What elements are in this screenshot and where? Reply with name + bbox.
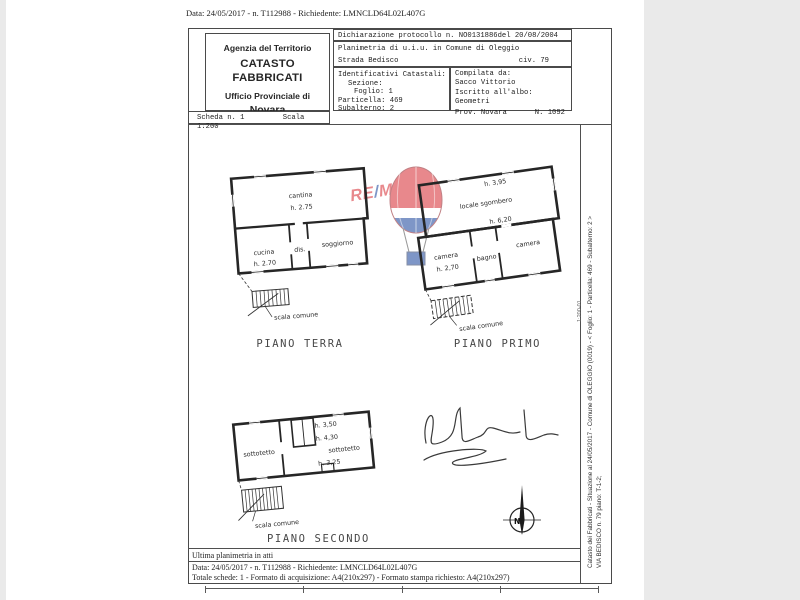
primo-title: PIANO PRIMO <box>415 338 580 350</box>
scan-background-left <box>0 0 6 600</box>
catastali-particella: Particella: 469 <box>338 97 449 106</box>
catastali-title: Identificativi Catastali: <box>338 71 449 80</box>
agency-line2: CATASTO FABBRICATI <box>206 57 329 86</box>
agency-line3: Ufficio Provinciale di <box>206 91 329 102</box>
compiler-albo-label: Iscritto all'albo: <box>455 89 571 98</box>
primo-room-labels: h. 3,95 locale sgombero h. 6,20 camera h… <box>424 174 551 335</box>
catastali-sezione: Sezione: <box>338 80 449 89</box>
compass-n-label: N <box>514 517 520 526</box>
compiler-num: N. 1092 <box>535 109 565 118</box>
agency-line1: Agenzia del Territorio <box>206 43 329 54</box>
protocol-box: Dichiarazione protocollo n. NO0131886del… <box>333 29 572 41</box>
planimetria-line: Planimetria di u.i.u. in Comune di Olegg… <box>338 45 567 54</box>
catastali-foglio: Foglio: 1 <box>338 88 449 97</box>
secondo-h1: h. 3,50 <box>314 420 337 430</box>
footer-divider-2 <box>188 561 580 562</box>
scale-ruler <box>205 588 599 589</box>
margin-line2: VIA BEDISCO n. 79 piano: T-1-2; <box>595 124 604 568</box>
signature <box>418 398 568 473</box>
primo-stairs <box>425 283 474 329</box>
street-number: civ. 79 <box>519 57 549 66</box>
floor-plan-terra: cantina h. 2.75 cucina h. 2.70 dis. sogg… <box>218 151 422 350</box>
primo-camera1-label: camera <box>433 251 458 262</box>
scanned-cadastral-document: { "document": { "top_line": "Data: 24/05… <box>0 0 800 600</box>
terra-dis-label: dis. <box>294 245 306 254</box>
compiler-name: Sacco Vittorio <box>455 79 571 88</box>
terra-cucina-height: h. 2.70 <box>253 259 276 269</box>
terra-title: PIANO TERRA <box>215 338 385 350</box>
floor-plan-secondo: sottotetto h. 3,50 h. 4,30 sottotetto h.… <box>220 391 432 550</box>
primo-scala-label: scala comune <box>459 319 504 333</box>
secondo-h3: h. 3,25 <box>318 458 341 468</box>
margin-vertical-text: Catasto dei Fabbricati - Situazione al 2… <box>586 124 606 568</box>
margin-stamp: 1:200-01 <box>577 300 583 322</box>
protocol-line: Dichiarazione protocollo n. NO0131886del… <box>338 32 558 40</box>
primo-camera2-label: camera <box>516 238 541 249</box>
secondo-stairs <box>235 476 285 522</box>
primo-camera1-height: h. 2,70 <box>436 263 459 274</box>
compiler-box: Compilata da: Sacco Vittorio Iscritto al… <box>450 67 572 111</box>
terra-scala-label: scala comune <box>274 310 319 321</box>
terra-cantina-height: h. 2.75 <box>290 202 313 212</box>
scheda-box: Scheda n. 1 Scala 1:200 <box>188 111 330 124</box>
footer-totale-line: Totale schede: 1 - Formato di acquisizio… <box>192 573 510 582</box>
footer-divider-1 <box>188 548 580 549</box>
terra-cucina-label: cucina <box>253 248 274 258</box>
terra-walls <box>231 168 371 273</box>
footer-ultima: Ultima planimetria in atti <box>192 551 273 560</box>
top-requester-line: Data: 24/05/2017 - n. T112988 - Richiede… <box>186 8 425 18</box>
scheda-number: Scheda n. 1 <box>197 114 244 122</box>
compiler-albo: Geometri <box>455 98 571 107</box>
terra-soggiorno-label: soggiorno <box>321 238 353 248</box>
scan-background-right <box>644 0 800 600</box>
compiler-prov: Prov. Novara <box>455 109 507 117</box>
secondo-sottotetto1-label: sottotetto <box>243 448 275 459</box>
catastali-subalterno: Subalterno: 2 <box>338 105 449 114</box>
compiler-label: Compilata da: <box>455 70 571 79</box>
north-compass-icon: N <box>500 483 545 543</box>
street-name: Strada Bedisco <box>338 57 398 65</box>
secondo-sottotetto2-label: sottotetto <box>328 444 360 455</box>
planimetria-box: Planimetria di u.i.u. in Comune di Olegg… <box>333 41 572 67</box>
primo-h-top: h. 3,95 <box>484 177 507 188</box>
catastali-box: Identificativi Catastali: Sezione: Fogli… <box>333 67 450 111</box>
terra-stairs <box>239 270 290 320</box>
header-divider-line <box>188 124 612 125</box>
margin-line1: Catasto dei Fabbricati - Situazione al 2… <box>586 124 595 568</box>
secondo-title: PIANO SECONDO <box>236 533 401 545</box>
primo-bagno-label: bagno <box>476 252 497 263</box>
secondo-h2: h. 4,30 <box>315 433 338 443</box>
primo-locale-label: locale sgombero <box>459 196 512 211</box>
agency-box: Agenzia del Territorio CATASTO FABBRICAT… <box>205 33 330 111</box>
terra-cantina-label: cantina <box>288 190 312 200</box>
footer-data-line: Data: 24/05/2017 - n. T112988 - Richiede… <box>192 563 417 572</box>
secondo-scala-label: scala comune <box>255 518 300 530</box>
